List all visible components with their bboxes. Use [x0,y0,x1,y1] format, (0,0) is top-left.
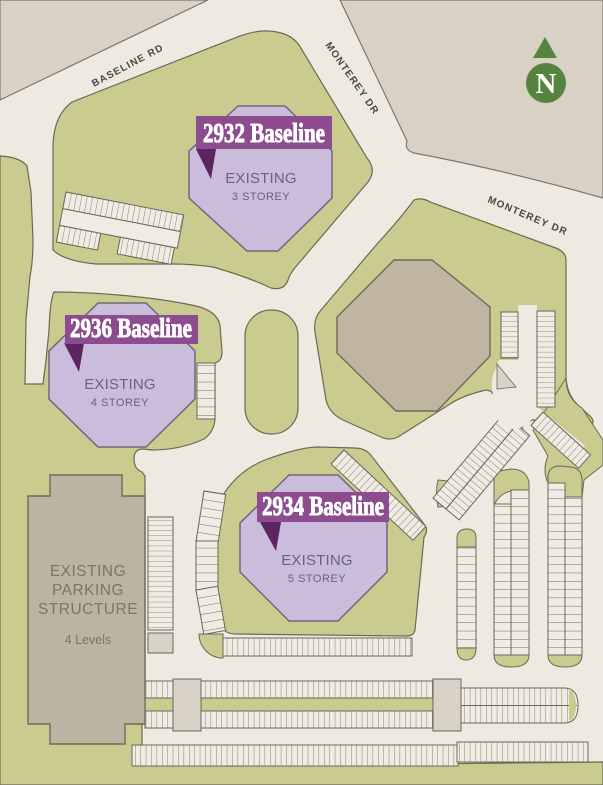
svg-text:PARKING: PARKING [52,582,124,599]
svg-text:5 STOREY: 5 STOREY [288,573,346,585]
svg-text:EXISTING: EXISTING [50,563,126,580]
svg-text:2936 Baseline: 2936 Baseline [70,313,192,343]
svg-text:EXISTING: EXISTING [225,170,297,187]
svg-text:3 STOREY: 3 STOREY [232,191,290,203]
svg-text:4 STOREY: 4 STOREY [91,397,149,409]
svg-text:EXISTING: EXISTING [281,552,353,569]
svg-text:2932 Baseline: 2932 Baseline [203,118,325,148]
svg-text:2934 Baseline: 2934 Baseline [262,491,384,521]
svg-text:STRUCTURE: STRUCTURE [38,601,138,618]
svg-text:EXISTING: EXISTING [84,376,156,393]
svg-text:4 Levels: 4 Levels [65,633,112,647]
svg-text:N: N [536,68,557,100]
